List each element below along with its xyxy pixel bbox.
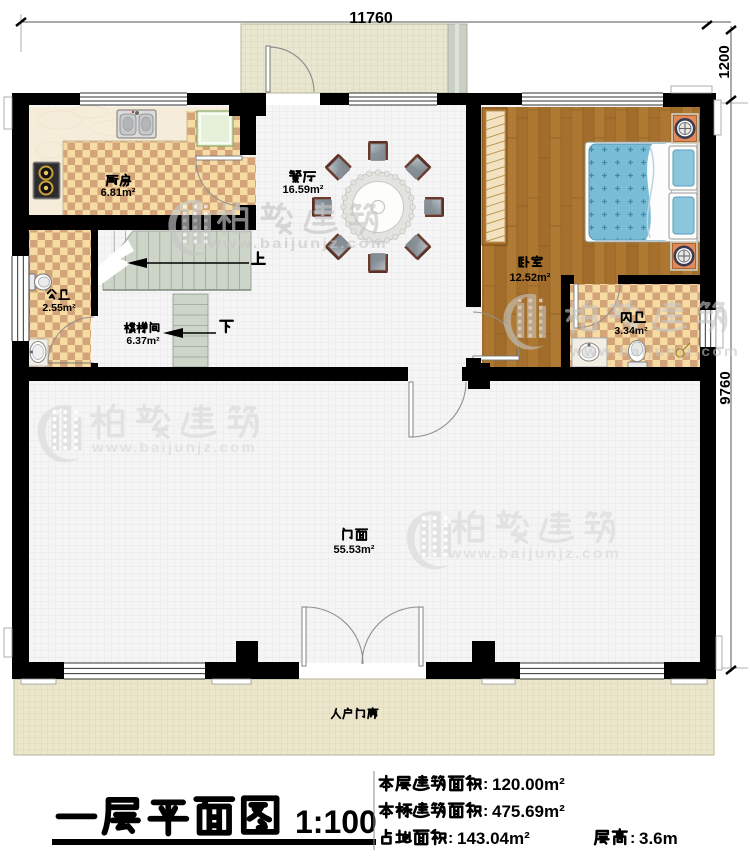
svg-text::: : <box>630 830 635 847</box>
svg-text:143.04m²: 143.04m² <box>457 829 530 848</box>
svg-text:6.37m²: 6.37m² <box>126 335 160 347</box>
svg-text:120.00m²: 120.00m² <box>492 775 565 794</box>
svg-text:12.52m²: 12.52m² <box>510 272 551 284</box>
svg-text:16.59m²: 16.59m² <box>283 184 324 196</box>
svg-text:55.53m²: 55.53m² <box>334 544 375 556</box>
svg-text:1200: 1200 <box>716 45 733 78</box>
svg-text::: : <box>448 830 453 847</box>
svg-text:3.6m: 3.6m <box>639 829 678 848</box>
svg-text:6.81m²: 6.81m² <box>101 187 136 199</box>
svg-text:www.baijunjz.com: www.baijunjz.com <box>448 545 621 561</box>
svg-text:www.baijunjz.com: www.baijunjz.com <box>91 439 257 455</box>
svg-text:www.baijunjz.com: www.baijunjz.com <box>569 343 740 359</box>
svg-text:475.69m²: 475.69m² <box>492 802 565 821</box>
svg-text:3.34m²: 3.34m² <box>614 325 648 337</box>
svg-text:2.55m²: 2.55m² <box>42 302 76 314</box>
svg-text::: : <box>483 803 488 820</box>
svg-text:www.baijunjz.com: www.baijunjz.com <box>207 235 388 251</box>
svg-text:1:100: 1:100 <box>295 804 377 840</box>
svg-text:9760: 9760 <box>717 371 734 404</box>
svg-text::: : <box>483 776 488 793</box>
